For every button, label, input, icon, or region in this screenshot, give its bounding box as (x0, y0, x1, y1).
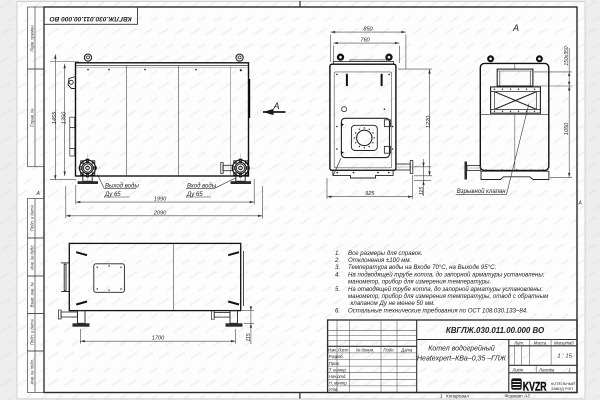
svg-text:Инв. № дубл.: Инв. № дубл. (29, 244, 34, 269)
svg-text:1220: 1220 (426, 115, 432, 128)
svg-text:Все размеры для справок.: Все размеры для справок. (348, 250, 423, 257)
svg-text:3.: 3. (335, 264, 340, 271)
svg-text:Ду 65: Ду 65 (186, 192, 203, 198)
svg-text:Лит.: Лит. (513, 341, 524, 346)
svg-text:Т. контр.: Т. контр. (329, 367, 347, 372)
svg-text:Отклонения ±100 мм.: Отклонения ±100 мм. (348, 257, 411, 264)
svg-text:ЗАВОД РЭП: ЗАВОД РЭП (551, 387, 573, 391)
svg-text:1700: 1700 (152, 336, 165, 342)
svg-text:Лист: Лист (512, 367, 524, 372)
svg-text:Разраб.: Разраб. (329, 354, 344, 359)
svg-text:Подп. и дата: Подп. и дата (30, 205, 35, 231)
svg-text:Взам. инв. №: Взам. инв. № (29, 281, 34, 307)
svg-text:1 : 15: 1 : 15 (557, 354, 572, 360)
svg-text:850: 850 (363, 27, 373, 33)
svg-text:Масса: Масса (534, 341, 547, 346)
svg-text:На отводящей трубе котла, до з: На отводящей трубе котла, до запорной ар… (348, 286, 543, 293)
svg-text:Остальные технические требован: Остальные технические требования по ОСТ … (348, 307, 528, 314)
svg-text:КВГЛЖ.030.011.00.000 ВО: КВГЛЖ.030.011.00.000 ВО (49, 15, 132, 22)
svg-text:Ду 65: Ду 65 (104, 192, 121, 198)
svg-text:Подп. и дата: Подп. и дата (29, 319, 34, 345)
svg-text:925: 925 (365, 191, 375, 197)
svg-text:Выход воды: Выход воды (105, 183, 139, 189)
svg-text:1990: 1990 (154, 197, 167, 203)
svg-text:1350: 1350 (61, 111, 67, 124)
svg-text:1455: 1455 (52, 111, 58, 124)
svg-text:Листов: Листов (538, 367, 555, 372)
svg-text:1.: 1. (335, 250, 340, 257)
svg-text:Н. контр.: Н. контр. (329, 381, 348, 386)
svg-text:Перв. примен.: Перв. примен. (30, 24, 35, 51)
svg-text:150х350: 150х350 (564, 46, 570, 65)
svg-text:1050: 1050 (564, 122, 570, 135)
svg-text:Масштаб: Масштаб (554, 341, 574, 346)
svg-text:1: 1 (440, 393, 443, 398)
svg-text:6.: 6. (335, 307, 340, 314)
svg-text:1: 1 (569, 367, 571, 372)
svg-text:А: А (512, 23, 519, 33)
svg-text:На подводящей трубе котла, до: На подводящей трубе котла, до запорной а… (348, 271, 545, 278)
svg-text:115: 115 (419, 187, 425, 195)
svg-text:Дата: Дата (400, 347, 413, 352)
svg-text:115: 115 (246, 333, 252, 341)
svg-text:Утв.: Утв. (329, 387, 339, 392)
svg-text:5.: 5. (335, 286, 340, 293)
svg-text:А: А (578, 201, 583, 207)
svg-text:Взрывной клапан: Взрывной клапан (457, 188, 506, 195)
svg-text:KVZR: KVZR (523, 379, 547, 393)
svg-text:А: А (273, 101, 280, 111)
svg-text:Котел водогрейный: Котел водогрейный (428, 344, 495, 352)
svg-text:Формат А3: Формат А3 (505, 393, 531, 398)
svg-text:манометр, прибор для измерения: манометр, прибор для измерения температу… (348, 293, 549, 300)
svg-text:Инв. № подл.: Инв. № подл. (29, 359, 34, 384)
svg-text:4.: 4. (335, 271, 340, 278)
svg-text:2090: 2090 (153, 210, 167, 216)
svg-text:Температура воды на Входе 70°С: Температура воды на Входе 70°С, на Выход… (348, 264, 496, 271)
svg-text:манометр, прибор для измерения: манометр, прибор для измерения температу… (348, 279, 491, 286)
svg-text:Лист: Лист (337, 347, 349, 352)
svg-text:2.: 2. (334, 257, 340, 264)
svg-text:КВГЛЖ.030.011.00.000 ВО: КВГЛЖ.030.011.00.000 ВО (446, 326, 544, 335)
svg-text:Нач.отд.: Нач.отд. (329, 374, 347, 379)
svg-text:№ докум.: № докум. (356, 347, 374, 352)
svg-text:Справ. №: Справ. № (29, 108, 34, 127)
svg-text:Подп.: Подп. (383, 347, 394, 352)
svg-text:А: А (36, 191, 41, 197)
svg-text:Изм.: Изм. (328, 347, 337, 352)
svg-text:760: 760 (360, 38, 370, 44)
svg-text:Копировал: Копировал (446, 393, 469, 398)
svg-text:Вход воды: Вход воды (187, 183, 217, 189)
svg-text:клапаном Ду не менее 50 мм.: клапаном Ду не менее 50 мм. (351, 300, 435, 307)
svg-text:КОТЕЛЬНЫЙ: КОТЕЛЬНЫЙ (551, 382, 575, 386)
svg-text:Пров.: Пров. (329, 361, 340, 366)
svg-text:Heatexpert–КВа–0,35 –ГЛЖ: Heatexpert–КВа–0,35 –ГЛЖ (417, 355, 507, 362)
